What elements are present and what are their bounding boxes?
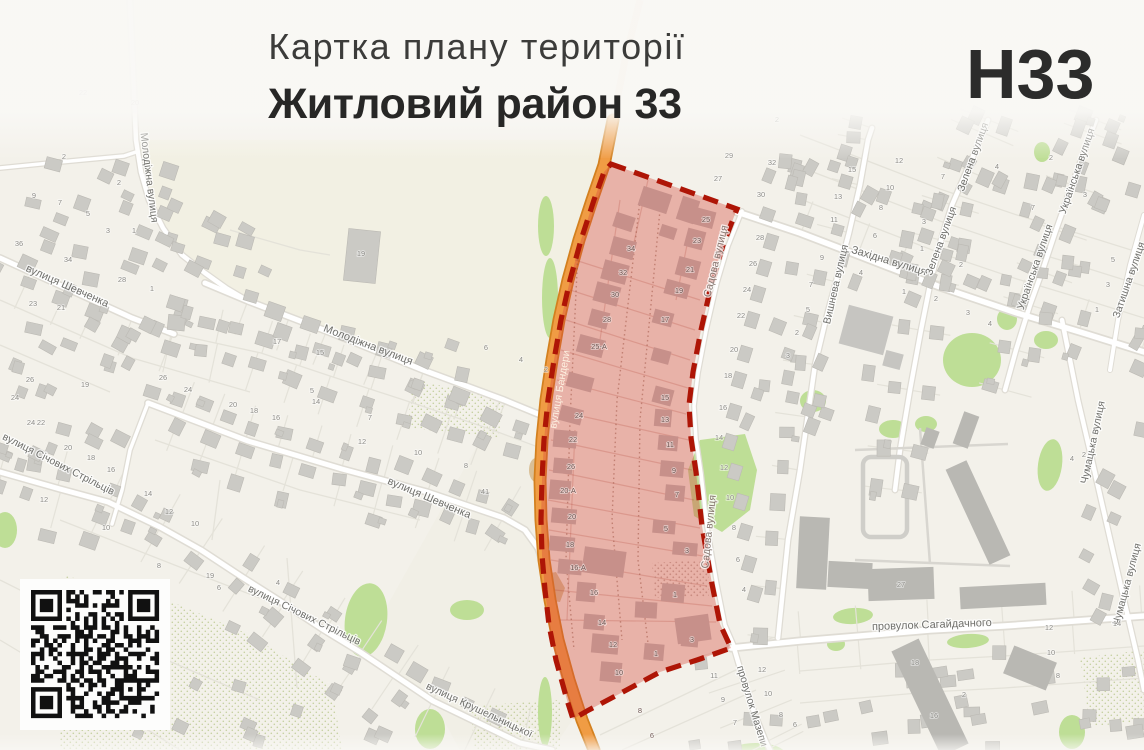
svg-text:34: 34 [627, 244, 635, 253]
svg-text:14: 14 [715, 433, 723, 442]
svg-text:4: 4 [276, 578, 280, 587]
svg-text:4: 4 [859, 268, 863, 277]
svg-text:15: 15 [661, 393, 669, 402]
svg-text:8: 8 [464, 461, 468, 470]
svg-text:15: 15 [848, 165, 856, 174]
svg-text:16: 16 [272, 413, 280, 422]
svg-text:30: 30 [757, 190, 765, 199]
svg-text:2: 2 [544, 365, 548, 374]
svg-text:3: 3 [1083, 190, 1087, 199]
svg-text:5: 5 [310, 386, 314, 395]
svg-text:6: 6 [736, 555, 740, 564]
svg-text:9: 9 [32, 191, 36, 200]
svg-text:11: 11 [830, 215, 838, 224]
svg-text:16: 16 [719, 403, 727, 412]
svg-text:34: 34 [64, 255, 72, 264]
svg-text:18: 18 [87, 453, 95, 462]
svg-text:13: 13 [661, 415, 669, 424]
svg-text:16: 16 [590, 588, 598, 597]
svg-text:2: 2 [795, 328, 799, 337]
svg-text:6: 6 [793, 720, 797, 729]
svg-text:4: 4 [1070, 454, 1074, 463]
svg-text:1: 1 [654, 649, 658, 658]
svg-text:20: 20 [229, 400, 237, 409]
svg-text:5: 5 [1111, 255, 1115, 264]
svg-text:18: 18 [250, 406, 258, 415]
svg-text:24: 24 [27, 418, 35, 427]
svg-text:14: 14 [312, 397, 320, 406]
svg-text:12: 12 [40, 495, 48, 504]
svg-text:3: 3 [966, 308, 970, 317]
svg-text:21: 21 [686, 265, 694, 274]
svg-text:10: 10 [615, 668, 623, 677]
svg-text:2: 2 [1082, 450, 1086, 459]
svg-text:14: 14 [598, 618, 606, 627]
svg-text:10: 10 [726, 493, 734, 502]
svg-text:3: 3 [922, 217, 926, 226]
svg-text:1: 1 [920, 244, 924, 253]
svg-text:19: 19 [81, 380, 89, 389]
svg-text:8: 8 [638, 706, 642, 715]
svg-text:25: 25 [702, 215, 710, 224]
svg-text:25-А: 25-А [591, 342, 607, 351]
svg-text:16: 16 [930, 711, 938, 720]
svg-text:9: 9 [721, 695, 725, 704]
svg-text:6: 6 [217, 583, 221, 592]
svg-text:12: 12 [720, 463, 728, 472]
svg-text:20-А: 20-А [560, 486, 576, 495]
svg-text:27: 27 [714, 174, 722, 183]
svg-text:28: 28 [756, 233, 764, 242]
svg-text:1: 1 [150, 284, 154, 293]
svg-text:12: 12 [1045, 623, 1053, 632]
svg-text:5: 5 [664, 524, 668, 533]
svg-text:10: 10 [191, 519, 199, 528]
svg-text:19: 19 [357, 249, 365, 258]
svg-text:20: 20 [64, 443, 72, 452]
svg-text:11: 11 [666, 440, 674, 449]
svg-text:23: 23 [29, 299, 37, 308]
svg-text:4: 4 [742, 585, 746, 594]
svg-text:12: 12 [609, 640, 617, 649]
svg-text:26: 26 [567, 462, 575, 471]
svg-text:12: 12 [165, 507, 173, 516]
svg-text:17: 17 [661, 315, 669, 324]
svg-text:28: 28 [118, 275, 126, 284]
svg-text:22: 22 [737, 311, 745, 320]
svg-text:16: 16 [107, 465, 115, 474]
svg-text:8: 8 [157, 561, 161, 570]
svg-text:32: 32 [619, 268, 627, 277]
svg-text:7: 7 [368, 413, 372, 422]
svg-text:26: 26 [159, 373, 167, 382]
svg-text:12: 12 [758, 665, 766, 674]
svg-text:2: 2 [962, 690, 966, 699]
svg-text:26: 26 [749, 259, 757, 268]
svg-text:5: 5 [86, 209, 90, 218]
svg-text:23: 23 [693, 236, 701, 245]
svg-text:8: 8 [779, 710, 783, 719]
svg-text:19: 19 [206, 571, 214, 580]
svg-text:6: 6 [484, 343, 488, 352]
svg-text:2: 2 [117, 178, 121, 187]
svg-text:18: 18 [724, 371, 732, 380]
svg-text:7: 7 [58, 198, 62, 207]
svg-text:9: 9 [672, 466, 676, 475]
svg-text:3: 3 [786, 351, 790, 360]
svg-text:4: 4 [988, 319, 992, 328]
svg-text:1: 1 [902, 287, 906, 296]
svg-text:20: 20 [730, 345, 738, 354]
svg-text:3: 3 [690, 635, 694, 644]
svg-text:30: 30 [611, 290, 619, 299]
svg-text:11: 11 [710, 671, 718, 680]
svg-text:17: 17 [273, 337, 281, 346]
svg-text:4: 4 [519, 355, 523, 364]
svg-text:14: 14 [144, 489, 152, 498]
svg-text:7: 7 [809, 280, 813, 289]
svg-text:24: 24 [184, 385, 192, 394]
svg-text:10: 10 [764, 689, 772, 698]
svg-text:13: 13 [834, 192, 842, 201]
svg-text:15: 15 [316, 348, 324, 357]
svg-text:8: 8 [879, 203, 883, 212]
svg-text:24: 24 [575, 411, 583, 420]
svg-text:36: 36 [15, 239, 23, 248]
svg-text:26: 26 [26, 375, 34, 384]
svg-text:16-А: 16-А [570, 563, 586, 572]
svg-text:27: 27 [897, 580, 905, 589]
svg-text:1: 1 [1095, 305, 1099, 314]
svg-text:24: 24 [743, 285, 751, 294]
svg-text:32: 32 [768, 158, 776, 167]
svg-text:10: 10 [102, 523, 110, 532]
svg-text:7: 7 [1031, 203, 1035, 212]
svg-text:10: 10 [886, 183, 894, 192]
svg-text:3: 3 [685, 546, 689, 555]
svg-text:7: 7 [941, 172, 945, 181]
svg-text:10: 10 [1047, 648, 1055, 657]
svg-text:14: 14 [1113, 619, 1121, 628]
svg-text:8: 8 [1056, 671, 1060, 680]
svg-text:28: 28 [603, 315, 611, 324]
svg-text:19: 19 [675, 286, 683, 295]
svg-text:12: 12 [358, 437, 366, 446]
svg-text:8: 8 [732, 523, 736, 532]
svg-text:41: 41 [481, 487, 489, 496]
svg-text:20: 20 [568, 512, 576, 521]
svg-text:9: 9 [820, 253, 824, 262]
svg-text:21: 21 [57, 303, 65, 312]
svg-text:7: 7 [733, 718, 737, 727]
svg-text:7: 7 [675, 490, 679, 499]
svg-text:4: 4 [995, 162, 999, 171]
svg-text:1: 1 [673, 590, 677, 599]
svg-text:18: 18 [911, 658, 919, 667]
svg-text:3: 3 [106, 226, 110, 235]
svg-text:18: 18 [566, 540, 574, 549]
svg-text:10: 10 [414, 448, 422, 457]
svg-text:24: 24 [11, 393, 19, 402]
svg-text:1: 1 [132, 226, 136, 235]
svg-text:3: 3 [1106, 280, 1110, 289]
svg-text:5: 5 [806, 305, 810, 314]
svg-text:6: 6 [873, 231, 877, 240]
svg-text:22: 22 [569, 435, 577, 444]
svg-text:2: 2 [934, 294, 938, 303]
svg-text:2: 2 [959, 260, 963, 269]
svg-text:22: 22 [37, 418, 45, 427]
